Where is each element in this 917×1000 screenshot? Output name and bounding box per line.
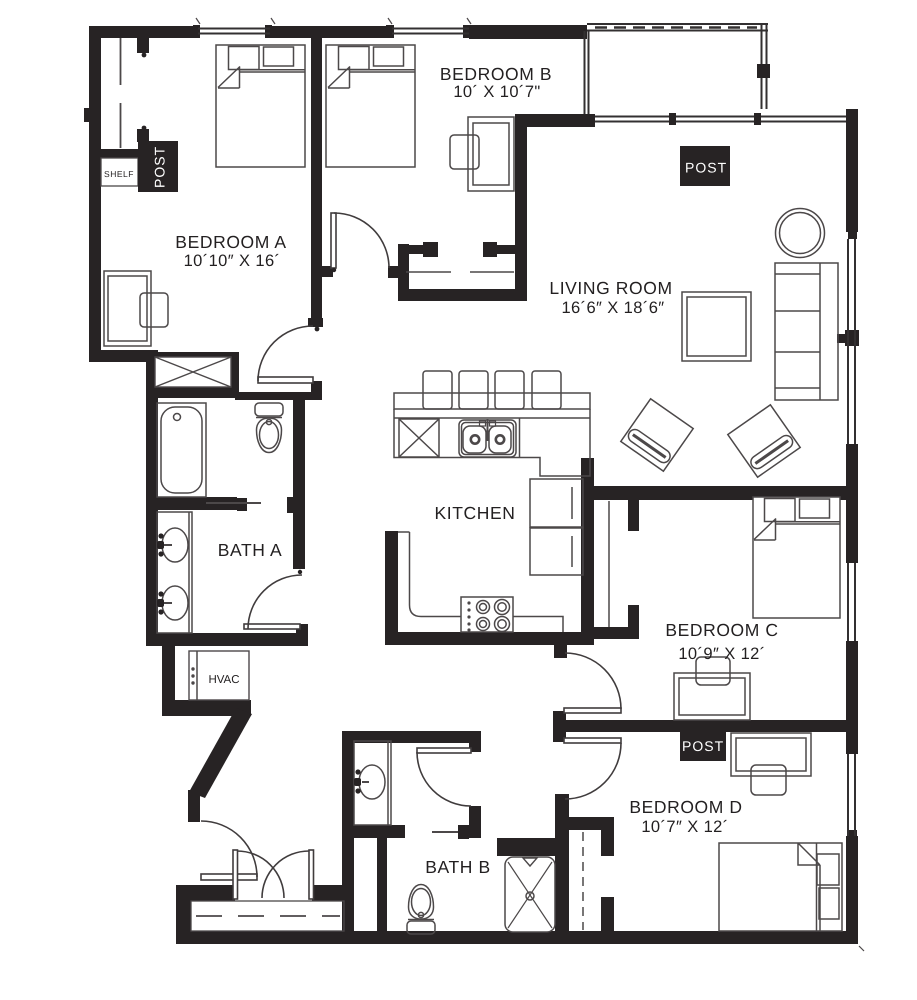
svg-text:10´ X 10´7": 10´ X 10´7" xyxy=(453,83,540,101)
svg-text:KITCHEN: KITCHEN xyxy=(434,503,515,523)
svg-text:16´6″ X 18´6″: 16´6″ X 18´6″ xyxy=(561,299,664,317)
svg-text:BEDROOM C: BEDROOM C xyxy=(665,620,778,640)
svg-text:POST: POST xyxy=(152,146,168,188)
svg-text:SHELF: SHELF xyxy=(104,169,134,179)
svg-text:LIVING ROOM: LIVING ROOM xyxy=(549,278,672,298)
svg-text:BEDROOM A: BEDROOM A xyxy=(175,232,286,252)
svg-text:POST: POST xyxy=(682,738,724,754)
svg-text:10´9″ X 12´: 10´9″ X 12´ xyxy=(678,645,765,663)
svg-text:BATH A: BATH A xyxy=(218,540,283,560)
svg-text:10´7″ X 12´: 10´7″ X 12´ xyxy=(641,818,728,836)
svg-text:POST: POST xyxy=(685,160,727,176)
svg-text:BEDROOM D: BEDROOM D xyxy=(629,797,742,817)
svg-text:HVAC: HVAC xyxy=(208,674,239,686)
svg-text:10´10″ X 16´: 10´10″ X 16´ xyxy=(184,252,281,270)
svg-text:BATH B: BATH B xyxy=(425,857,491,877)
svg-text:BEDROOM B: BEDROOM B xyxy=(440,64,552,84)
